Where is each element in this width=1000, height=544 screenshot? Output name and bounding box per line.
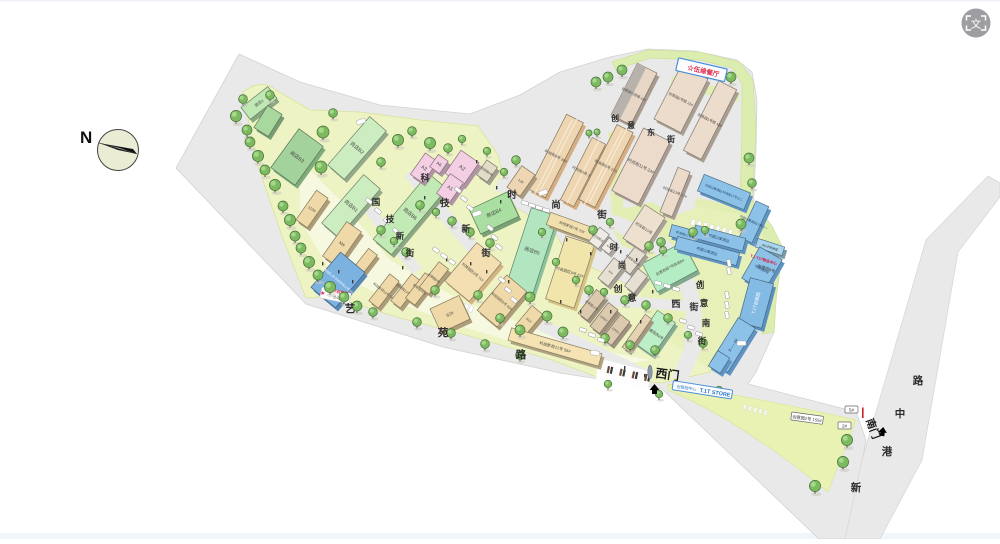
svg-text:街: 街 — [480, 247, 490, 258]
svg-text:新: 新 — [851, 481, 862, 494]
svg-text:中: 中 — [895, 407, 906, 420]
svg-text:街: 街 — [688, 301, 698, 312]
svg-text:新: 新 — [396, 231, 405, 241]
svg-text:尚: 尚 — [551, 199, 561, 211]
svg-text:西: 西 — [671, 299, 680, 309]
svg-text:意: 意 — [627, 120, 635, 130]
svg-text:科: 科 — [420, 172, 429, 183]
svg-text:路: 路 — [516, 348, 527, 361]
svg-text:路: 路 — [913, 374, 924, 387]
svg-text:意: 意 — [627, 292, 636, 303]
svg-text:南: 南 — [702, 318, 711, 328]
svg-text:技: 技 — [440, 197, 450, 208]
svg-text:意: 意 — [700, 298, 709, 308]
svg-text:苑: 苑 — [437, 326, 449, 339]
svg-text:创: 创 — [610, 113, 619, 123]
svg-text:时: 时 — [507, 189, 517, 201]
svg-text:5#: 5# — [849, 408, 855, 413]
svg-text:街: 街 — [596, 209, 607, 221]
svg-text:创: 创 — [695, 280, 705, 290]
svg-text:新: 新 — [461, 223, 470, 234]
svg-text:文: 文 — [971, 18, 982, 31]
svg-text:国: 国 — [372, 197, 381, 207]
svg-text:2#: 2# — [842, 424, 848, 429]
svg-text:尚: 尚 — [618, 260, 627, 270]
svg-text:N: N — [80, 128, 92, 147]
svg-text:港: 港 — [882, 445, 893, 458]
svg-text:街: 街 — [666, 134, 675, 144]
svg-text:街: 街 — [697, 336, 707, 346]
svg-text:创: 创 — [612, 283, 622, 294]
svg-text:技: 技 — [386, 214, 395, 224]
svg-text:时: 时 — [610, 242, 619, 252]
svg-text:艺: 艺 — [345, 302, 356, 315]
svg-text:东: 东 — [647, 127, 655, 137]
svg-text:街: 街 — [405, 248, 415, 258]
